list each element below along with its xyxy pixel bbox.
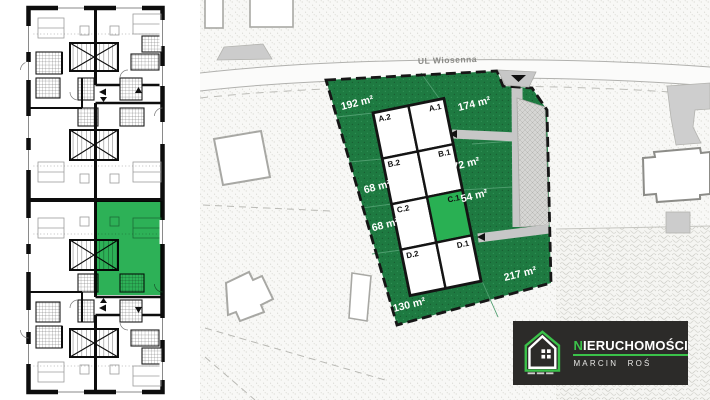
brand-logo: NIERUCHOMOŚCI MARCIN ROŚ xyxy=(513,321,688,385)
floor-plan-highlight xyxy=(96,201,163,295)
logo-house-caption xyxy=(528,372,554,374)
logo-house-icon xyxy=(523,326,565,380)
brand-name: NIERUCHOMOŚCI xyxy=(573,339,688,356)
brand-initial: N xyxy=(573,338,583,353)
brand-subtitle: MARCIN ROŚ xyxy=(573,359,688,368)
brand-rest: IERUCHOMOŚCI xyxy=(583,338,688,353)
street-label: UL Wiosenna xyxy=(418,54,477,66)
real-estate-plan-image: UL Wiosenna xyxy=(0,0,710,400)
floor-plan xyxy=(20,4,168,396)
house-window-icon xyxy=(541,349,550,358)
